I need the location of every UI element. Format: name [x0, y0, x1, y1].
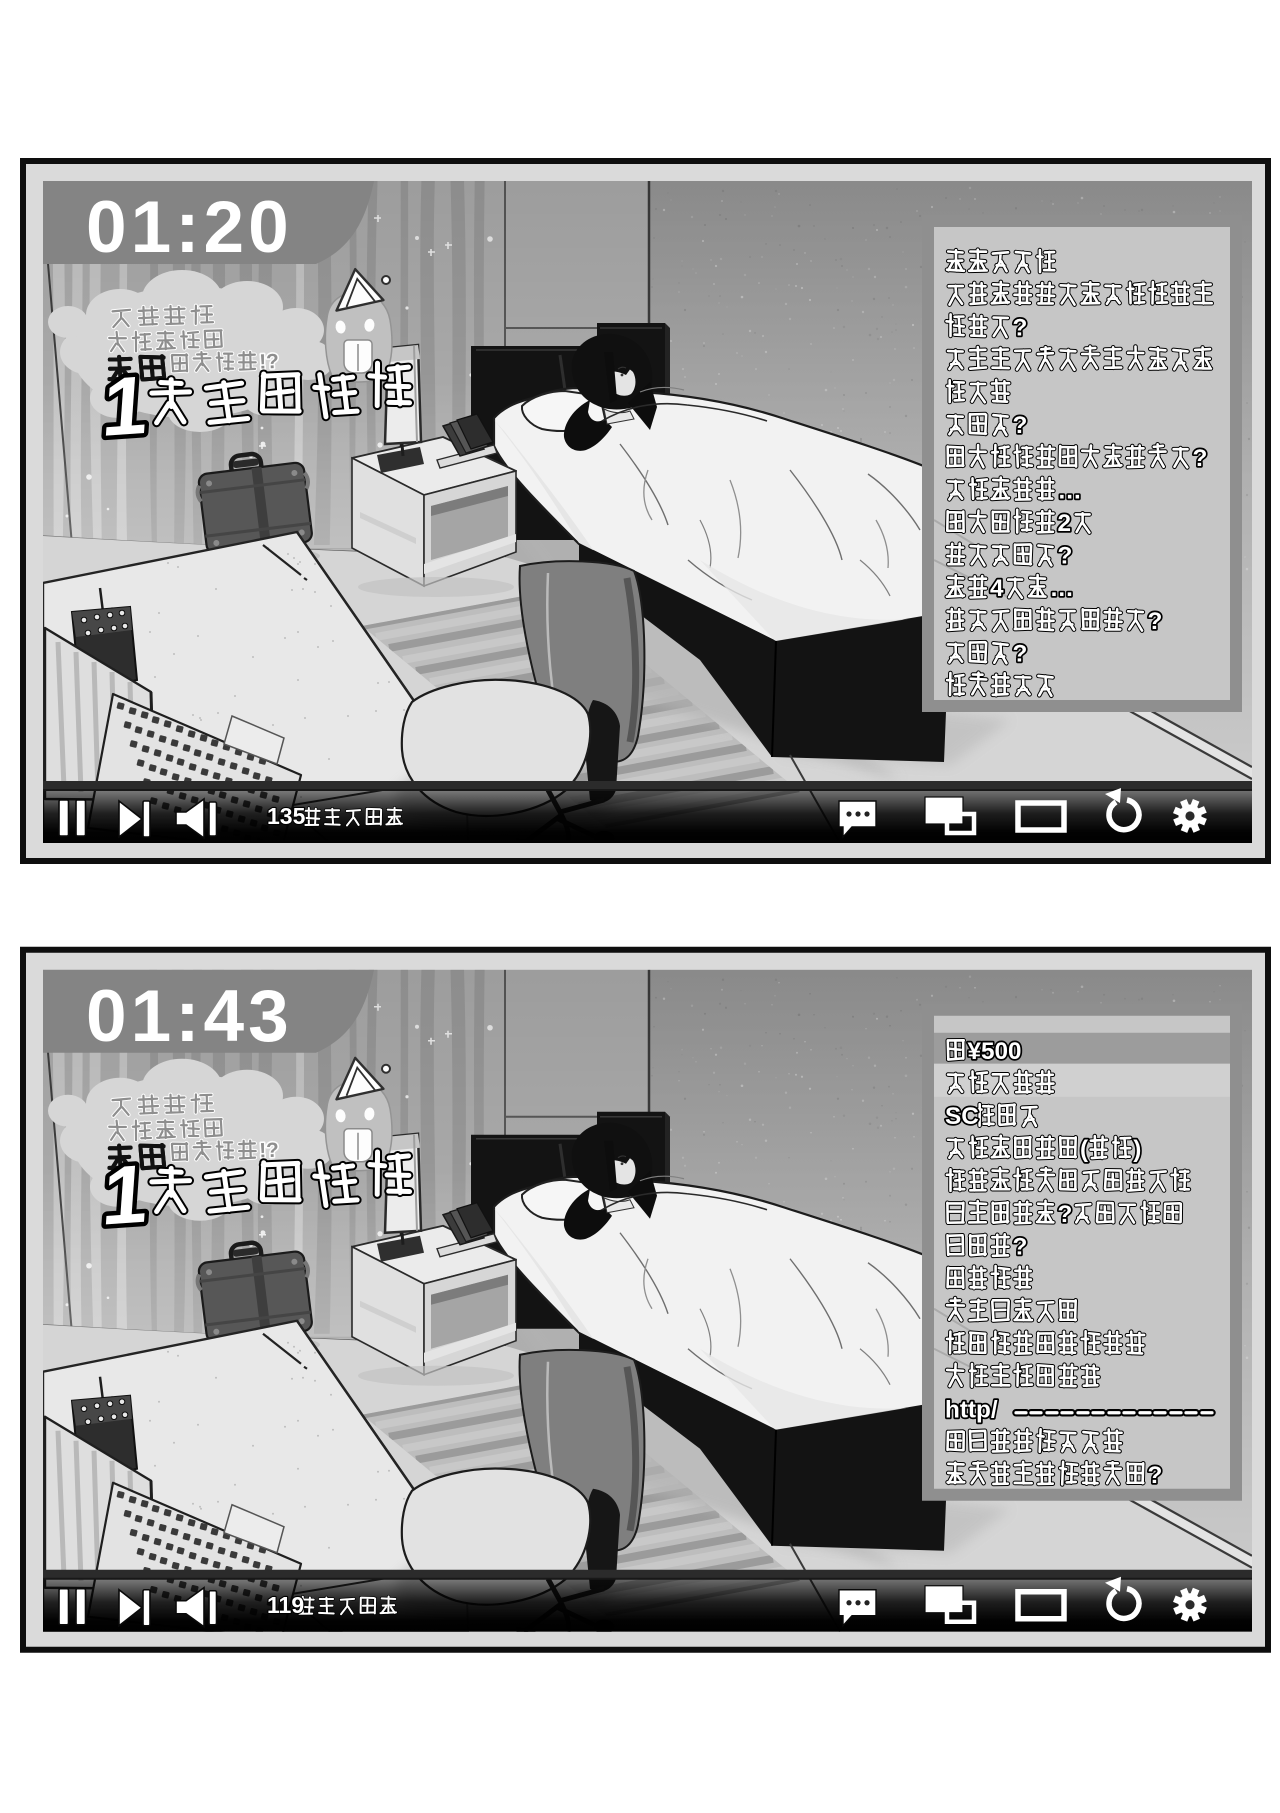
- svg-text:1: 1: [99, 359, 151, 454]
- svg-text:135: 135: [267, 803, 306, 829]
- svg-text:01:20: 01:20: [86, 187, 293, 268]
- svg-text:?: ?: [1193, 445, 1208, 472]
- svg-text:?: ?: [1013, 314, 1028, 341]
- svg-text:2: 2: [1058, 510, 1072, 537]
- svg-text:?: ?: [1013, 412, 1028, 439]
- svg-text:4: 4: [990, 575, 1004, 602]
- svg-text:¥500: ¥500: [968, 1038, 1022, 1065]
- svg-text:01:43: 01:43: [86, 976, 293, 1057]
- svg-text:1: 1: [99, 1147, 151, 1242]
- svg-text:SC: SC: [945, 1103, 979, 1130]
- svg-text:?: ?: [1013, 1234, 1028, 1261]
- svg-text:): ): [1133, 1136, 1141, 1163]
- svg-text:?: ?: [1148, 608, 1163, 635]
- svg-text:?: ?: [1058, 1201, 1073, 1228]
- svg-text:…: …: [1058, 477, 1082, 504]
- svg-text:119: 119: [267, 1592, 304, 1618]
- svg-text:http/: http/: [945, 1397, 998, 1424]
- svg-text:?: ?: [1058, 543, 1073, 570]
- svg-text:…: …: [1050, 575, 1074, 602]
- svg-text:?: ?: [1148, 1462, 1163, 1489]
- svg-text:(: (: [1080, 1136, 1089, 1163]
- svg-text:?: ?: [1013, 640, 1028, 667]
